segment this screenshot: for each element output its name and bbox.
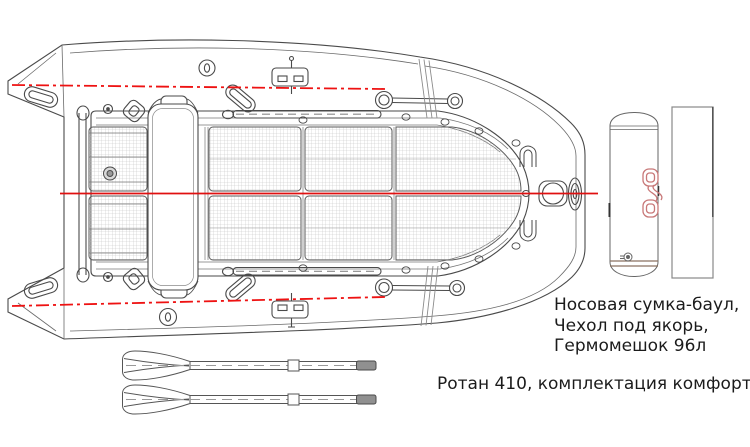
- oars: [123, 351, 377, 414]
- floor-drain-plug: [104, 167, 117, 180]
- dry-bag-drawing: [672, 107, 713, 278]
- oar-bottom: [123, 385, 377, 414]
- bench-seat: [148, 96, 198, 298]
- bow-bag-drawing: [610, 113, 662, 277]
- oar-top: [123, 351, 377, 380]
- equipment-item: Носовая сумка-баул,: [554, 295, 739, 316]
- equipment-list: Носовая сумка-баул, Чехол под якорь, Гер…: [554, 295, 739, 357]
- boat-spec-figure: Носовая сумка-баул, Чехол под якорь, Гер…: [0, 0, 750, 447]
- model-caption: Ротан 410, комплектация комфорт +: [437, 374, 750, 394]
- equipment-item: Гермомешок 96л: [554, 336, 739, 357]
- equipment-item: Чехол под якорь,: [554, 316, 739, 337]
